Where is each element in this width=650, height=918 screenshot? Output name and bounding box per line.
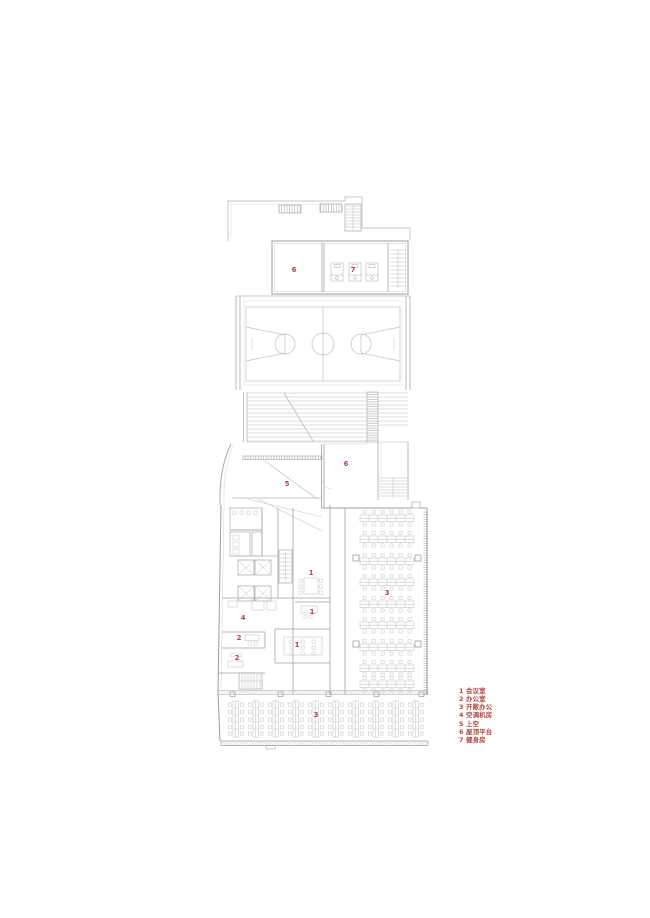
legend-item-number: 5 — [459, 720, 466, 728]
ac-plant-room — [228, 601, 276, 610]
legend-item-label: 健身房 — [466, 736, 486, 744]
legend-item: 5上空 — [459, 720, 492, 728]
legend-item: 1会议室 — [459, 687, 492, 695]
void-wall — [322, 444, 325, 508]
basketball-court — [246, 307, 400, 381]
column-icon — [415, 555, 421, 561]
west-wall — [218, 505, 221, 741]
marker-roof-terrace: 6 — [344, 460, 349, 468]
bleachers — [244, 392, 409, 442]
meeting-room-large — [284, 637, 322, 655]
column-icon — [353, 555, 359, 561]
core-toilets — [230, 508, 278, 556]
terrace-stair-icon — [378, 442, 408, 500]
legend-item: 4空调机房 — [459, 711, 492, 719]
marker-open-office-right: 3 — [385, 589, 390, 597]
lower-building — [218, 498, 428, 749]
legend-item-label: 会议室 — [466, 687, 486, 695]
corridor-wall — [218, 691, 428, 695]
column-icon — [415, 641, 421, 647]
legend-item-label: 办公室 — [466, 695, 486, 703]
office-a — [245, 635, 259, 645]
floor-plan-page: 6 7 5 6 1 1 4 2 2 1 3 3 1会议室 2办公室 3开敞办公 … — [0, 0, 650, 918]
roof-outline — [228, 197, 410, 241]
legend-item-number: 3 — [459, 703, 466, 711]
marker-meeting-large: 1 — [295, 641, 300, 649]
marker-open-office-bottom: 3 — [314, 711, 319, 719]
floor-plan-drawing: 6 7 5 6 1 1 4 2 2 1 3 3 — [0, 0, 650, 918]
legend-item-label: 上空 — [466, 720, 479, 728]
void-diagonal — [265, 461, 317, 499]
marker-office-a: 2 — [237, 634, 242, 642]
marker-ac-room: 4 — [241, 614, 246, 622]
void-railing — [243, 456, 322, 460]
legend-item-number: 1 — [459, 687, 466, 695]
legend-item: 6屋顶平台 — [459, 728, 492, 736]
marker-void: 5 — [285, 480, 290, 488]
open-office-bottom-desks — [228, 701, 423, 737]
lower-stair-icon — [239, 673, 262, 689]
atrium-railing — [247, 499, 322, 531]
legend-item-number: 4 — [459, 711, 466, 719]
legend-item: 7健身房 — [459, 736, 492, 744]
meeting-room-upper — [299, 578, 323, 594]
legend-item-number: 7 — [459, 736, 466, 744]
legend-item-label: 屋顶平台 — [466, 728, 492, 736]
interior-walls — [218, 505, 345, 694]
marker-office-small: 1 — [310, 608, 315, 616]
south-wall — [221, 741, 428, 746]
open-office-right-desks — [353, 510, 421, 692]
elevator-bank-icon — [238, 560, 271, 601]
legend-item-label: 空调机房 — [466, 711, 492, 719]
court-block — [236, 296, 410, 390]
legend: 1会议室 2办公室 3开敞办公 4空调机房 5上空 6屋顶平台 7健身房 — [459, 687, 492, 744]
core-stair-icon — [279, 550, 292, 583]
column-icon — [353, 641, 359, 647]
roof-stair-icon — [345, 204, 361, 231]
east-curtain-wall — [424, 510, 429, 695]
roof-vent-icon — [279, 204, 342, 213]
legend-item-number: 2 — [459, 695, 466, 703]
marker-roof-room: 6 — [292, 266, 297, 274]
legend-item-number: 6 — [459, 728, 466, 736]
gym-stair-icon — [390, 250, 406, 288]
marker-meeting-upper: 1 — [309, 569, 314, 577]
marker-office-b: 2 — [235, 654, 240, 662]
marker-gym: 7 — [351, 266, 356, 274]
bleacher-end-wall — [367, 392, 378, 442]
